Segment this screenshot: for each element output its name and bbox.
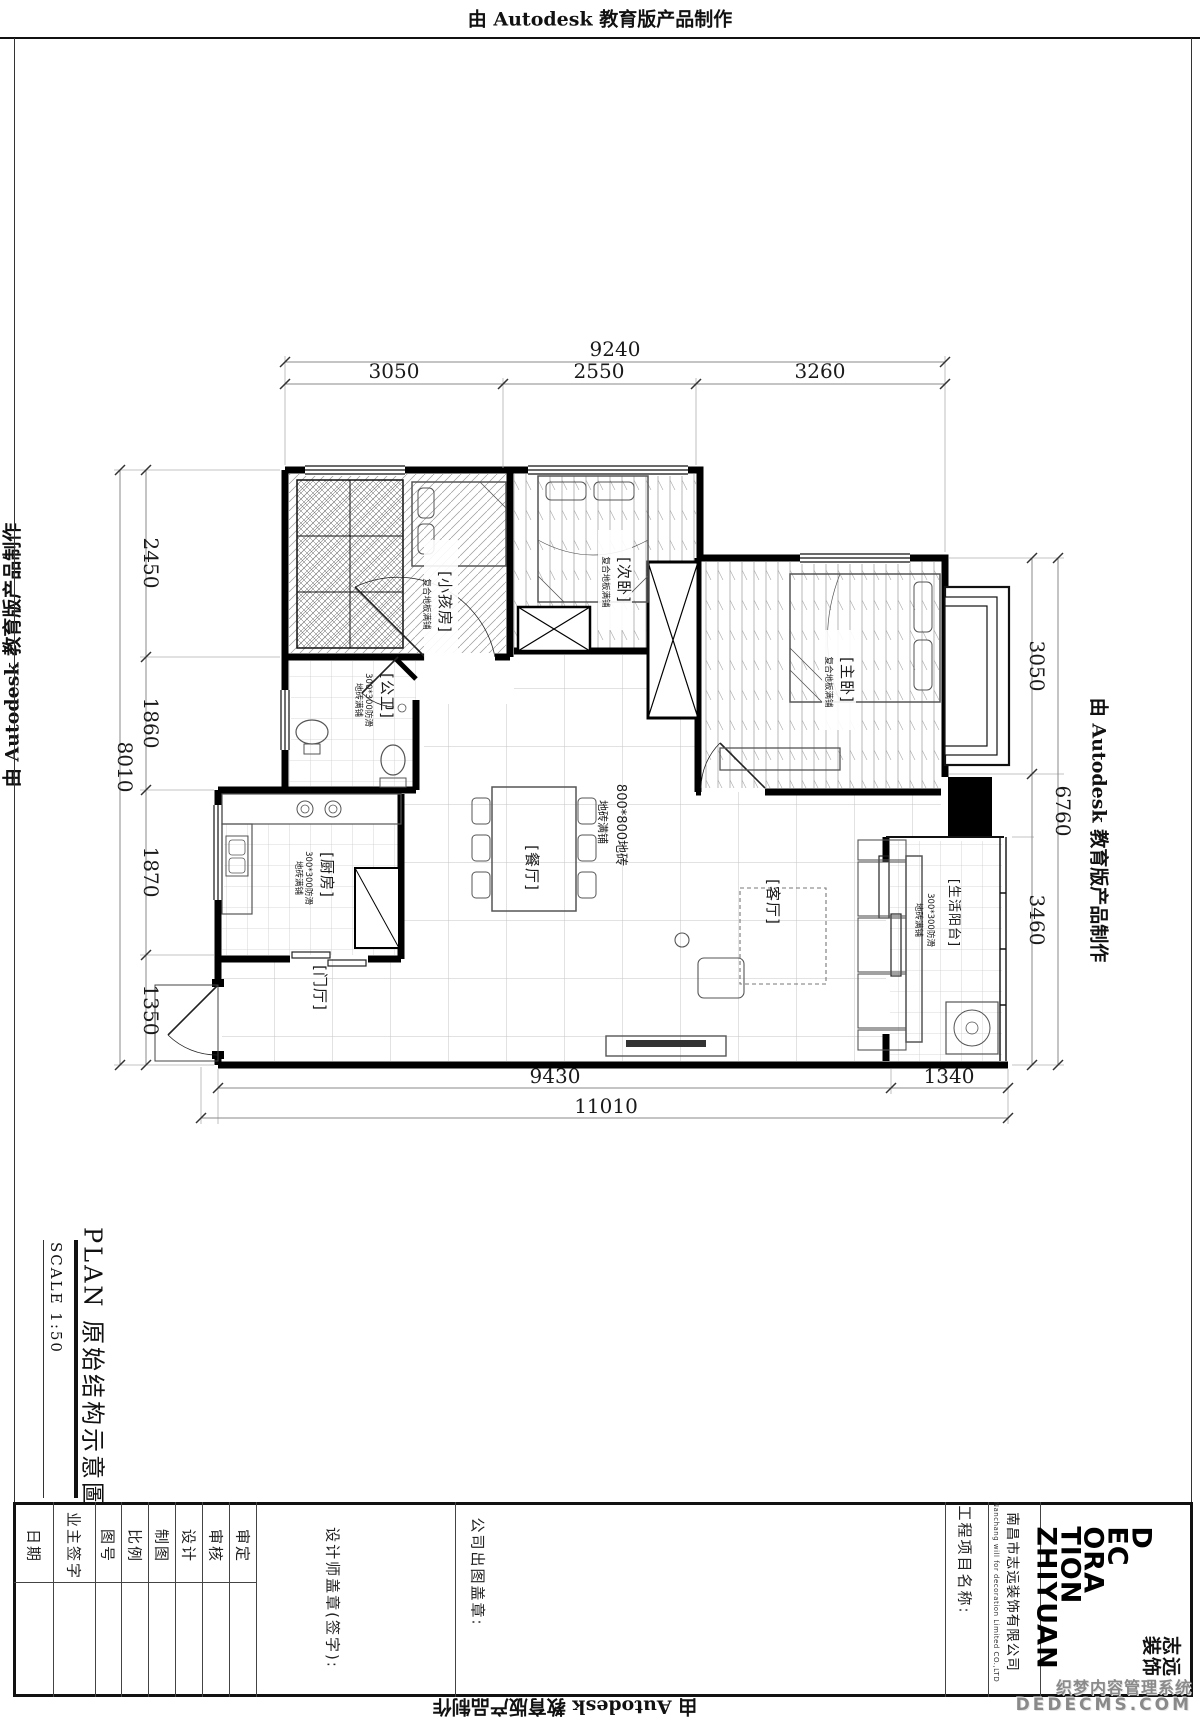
- dim-top-seg2: 3260: [795, 359, 846, 383]
- project-name-label: 工程项目名称:: [955, 1505, 976, 1614]
- table-border-top: [14, 1502, 1192, 1505]
- company-name-en: Nanchang will for decoration Limited CO.…: [992, 1502, 1000, 1682]
- bay-window: [945, 587, 1009, 765]
- company-stamp-label: 公司出图盖章:: [468, 1517, 489, 1626]
- table-divider: [256, 1502, 257, 1697]
- frame-line-left: [14, 38, 15, 1697]
- autodesk-stamp-right: 由 Autodesk 教育版产品制作: [1087, 698, 1114, 962]
- dim-top-overall: 9240: [590, 340, 641, 361]
- dedecms-watermark: 织梦内容管理系统 DEDECMS.COM: [1016, 1680, 1192, 1715]
- company-logo: D EC ORA TION ZHIYUAN: [1034, 1526, 1153, 1669]
- dim-right-seg0: 3050: [1025, 641, 1049, 692]
- room-floor-kitchen: 300*300防滑: [303, 851, 314, 905]
- table-divider: [121, 1502, 122, 1697]
- plan-scale: SCALE 1:50: [47, 1242, 65, 1354]
- room-label-dining: [餐厅]: [523, 845, 541, 891]
- dim-right-overall: 6760: [1051, 786, 1075, 837]
- table-field-checked: 审核: [206, 1529, 227, 1563]
- drawing-sheet: { "sheet": { "autodesk_stamp": "由 Autode…: [0, 0, 1200, 1717]
- table-field-designed: 设计: [179, 1529, 200, 1563]
- room-label-kitchen: [厨房]: [318, 852, 336, 898]
- table-divider: [988, 1502, 989, 1697]
- dim-top-seg1: 2550: [574, 359, 625, 383]
- title-rule-thin: [43, 1240, 44, 1498]
- room-label-second: [次卧]: [615, 557, 633, 603]
- table-divider: [53, 1502, 54, 1697]
- room-label-master: [主卧]: [838, 657, 856, 703]
- table-field-date: 日期: [24, 1529, 45, 1563]
- room-floor-bathroom: 300*300防滑: [363, 673, 374, 727]
- autodesk-stamp-left: 由 Autodesk 教育版产品制作: [0, 523, 25, 787]
- dim-right-seg1: 3460: [1025, 895, 1049, 946]
- table-field-scale: 比例: [125, 1529, 146, 1563]
- table-divider: [229, 1502, 230, 1697]
- room-floor2-bathroom: 地砖满铺: [353, 683, 364, 718]
- dim-bottom-seg0: 9430: [530, 1064, 581, 1088]
- dim-bottom-seg1: 1340: [924, 1064, 975, 1088]
- frame-line-right: [1191, 38, 1192, 1697]
- room-floor2-kitchen: 地砖满铺: [293, 861, 304, 896]
- autodesk-stamp-top: 由 Autodesk 教育版产品制作: [468, 5, 732, 32]
- logo-line: ZHIYUAN: [1034, 1526, 1058, 1669]
- table-divider: [95, 1502, 96, 1697]
- table-divider: [455, 1502, 456, 1697]
- seal-line: 志远: [1160, 1636, 1180, 1678]
- table-divider-label-row: [14, 1582, 256, 1583]
- company-name: 南昌市志远装饰有限公司: [1004, 1512, 1024, 1672]
- floor-plan: [小孩房] 复合地板满铺 [次卧] 复合地板满铺 [主卧] 复合地板满铺 [公卫…: [100, 340, 1080, 1140]
- dim-bottom-overall: 11010: [574, 1094, 638, 1118]
- floor-note-lay: 地砖满铺: [596, 800, 610, 844]
- room-label-foyer: [门厅]: [311, 965, 329, 1011]
- table-field-drafted: 制图: [152, 1529, 173, 1563]
- room-floor-master: 复合地板满铺: [823, 656, 834, 708]
- table-border-left: [13, 1502, 16, 1697]
- autodesk-stamp-bottom: 由 Autodesk 教育版产品制作: [433, 1695, 697, 1722]
- table-divider: [945, 1502, 946, 1697]
- dim-left-overall: 8010: [113, 742, 137, 793]
- table-border-right: [1190, 1502, 1193, 1697]
- table-field-drawing-no: 图号: [98, 1529, 119, 1563]
- dim-top-seg0: 3050: [369, 359, 420, 383]
- room-floor2-balcony: 地砖满铺: [913, 903, 924, 938]
- room-label-living: [客厅]: [764, 879, 782, 925]
- room-label-balcony: [生活阳台]: [946, 879, 961, 947]
- dim-left-seg1: 1860: [139, 698, 163, 749]
- watermark-line2: DEDECMS.COM: [1016, 1697, 1192, 1715]
- seal-line: 装饰: [1140, 1636, 1160, 1678]
- room-floor-balcony: 300*300防滑: [925, 893, 936, 947]
- designer-stamp-label: 设计师盖章(签字):: [323, 1527, 344, 1669]
- table-field-owner-signature: 业主签字: [64, 1512, 85, 1580]
- plan-title: PLAN 原始结构示意圖: [78, 1227, 113, 1509]
- frame-line-top: [0, 37, 1200, 39]
- dim-left-seg3: 1350: [139, 985, 163, 1036]
- dim-left-seg0: 2450: [139, 538, 163, 589]
- table-divider: [202, 1502, 203, 1697]
- logo-line: EC: [1105, 1526, 1129, 1669]
- structural-column: [948, 777, 992, 837]
- room-label-bathroom: [公卫]: [378, 673, 396, 719]
- room-floor-second: 复合地板满铺: [600, 556, 611, 608]
- table-divider: [148, 1502, 149, 1697]
- dim-left-seg2: 1870: [139, 847, 163, 898]
- room-floor-kids: 复合地板满铺: [421, 578, 432, 630]
- floor-note-spec: 800*800地砖: [613, 784, 628, 866]
- table-field-approved: 审定: [233, 1529, 254, 1563]
- company-seal: 志远 装饰: [1140, 1636, 1180, 1678]
- room-label-kids: [小孩房]: [436, 571, 454, 633]
- table-divider: [175, 1502, 176, 1697]
